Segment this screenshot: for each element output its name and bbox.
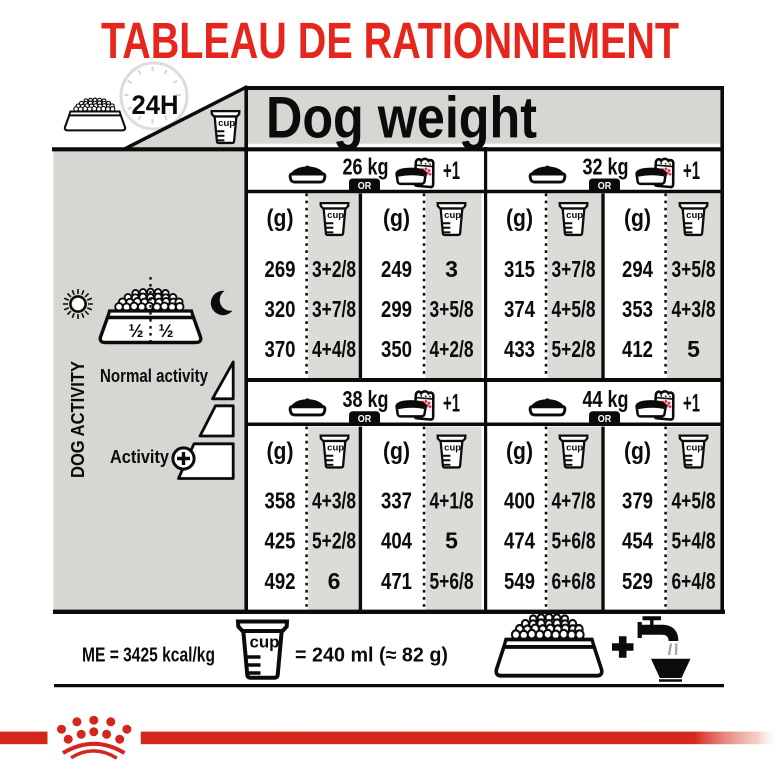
svg-text:350: 350 [381, 336, 412, 362]
svg-text:400: 400 [504, 488, 535, 514]
svg-text:38 kg: 38 kg [343, 386, 389, 412]
svg-text:337: 337 [381, 488, 412, 514]
svg-text:(g): (g) [506, 205, 533, 232]
svg-text:353: 353 [622, 296, 653, 322]
svg-text:4+3/8: 4+3/8 [312, 488, 356, 514]
svg-text:358: 358 [265, 488, 296, 514]
svg-text:249: 249 [381, 256, 412, 282]
svg-text:3+7/8: 3+7/8 [552, 256, 596, 282]
svg-text:(g): (g) [624, 205, 651, 232]
svg-text:294: 294 [622, 256, 653, 282]
svg-text:TABLEAU DE RATIONNEMENT: TABLEAU DE RATIONNEMENT [101, 12, 679, 69]
svg-text:(g): (g) [267, 205, 294, 232]
svg-text:5+2/8: 5+2/8 [552, 336, 596, 362]
svg-text:5: 5 [445, 528, 458, 554]
svg-text:24H: 24H [132, 90, 179, 120]
svg-text:+1: +1 [683, 157, 700, 185]
svg-text:4+1/8: 4+1/8 [430, 488, 474, 514]
svg-text:3+5/8: 3+5/8 [430, 296, 474, 322]
svg-text:44 kg: 44 kg [583, 386, 629, 412]
svg-text:26 kg: 26 kg [343, 154, 389, 180]
svg-text:5+2/8: 5+2/8 [312, 528, 356, 554]
svg-text:DOG ACTIVITY: DOG ACTIVITY [67, 360, 88, 478]
svg-text:Activity: Activity [110, 447, 169, 467]
svg-text:+1: +1 [443, 157, 460, 185]
svg-text:6+6/8: 6+6/8 [552, 568, 596, 594]
svg-text:379: 379 [622, 488, 653, 514]
svg-text:5+6/8: 5+6/8 [552, 528, 596, 554]
svg-text:(g): (g) [267, 438, 294, 465]
svg-text:ME = 3425 kcal/kg: ME = 3425 kcal/kg [82, 645, 215, 667]
svg-text:370: 370 [265, 336, 296, 362]
svg-text:404: 404 [381, 528, 412, 554]
svg-text:492: 492 [265, 568, 296, 594]
svg-text:425: 425 [265, 528, 296, 554]
svg-text:4+5/8: 4+5/8 [672, 488, 716, 514]
svg-text:3: 3 [445, 256, 458, 282]
svg-text:5+6/8: 5+6/8 [430, 568, 474, 594]
svg-text:269: 269 [265, 256, 296, 282]
svg-text:474: 474 [504, 528, 535, 554]
svg-text:4+3/8: 4+3/8 [672, 296, 716, 322]
svg-text:315: 315 [504, 256, 535, 282]
svg-text:= 240 ml (≈ 82 g): = 240 ml (≈ 82 g) [295, 645, 448, 667]
svg-text:5+4/8: 5+4/8 [672, 528, 716, 554]
svg-text:+1: +1 [443, 389, 460, 417]
svg-text:454: 454 [622, 528, 653, 554]
svg-text:4+7/8: 4+7/8 [552, 488, 596, 514]
svg-text:6: 6 [328, 568, 341, 594]
svg-text:549: 549 [504, 568, 535, 594]
svg-text:+1: +1 [683, 389, 700, 417]
svg-text:529: 529 [622, 568, 653, 594]
svg-text:374: 374 [504, 296, 535, 322]
svg-text:320: 320 [265, 296, 296, 322]
svg-text:6+4/8: 6+4/8 [672, 568, 716, 594]
svg-text:(g): (g) [624, 438, 651, 465]
svg-text:4+2/8: 4+2/8 [430, 336, 474, 362]
svg-text:½: ½ [158, 321, 173, 341]
svg-text:Dog weight: Dog weight [266, 86, 537, 151]
svg-text:3+2/8: 3+2/8 [312, 256, 356, 282]
svg-text:½: ½ [128, 321, 143, 341]
svg-text:3+5/8: 3+5/8 [672, 256, 716, 282]
svg-text:5: 5 [687, 336, 700, 362]
svg-text:(g): (g) [383, 205, 410, 232]
svg-text:(g): (g) [506, 438, 533, 465]
svg-text:412: 412 [622, 336, 653, 362]
svg-text:32 kg: 32 kg [583, 154, 629, 180]
svg-text:433: 433 [504, 336, 535, 362]
svg-text:4+5/8: 4+5/8 [552, 296, 596, 322]
svg-text:Normal activity: Normal activity [100, 366, 208, 386]
svg-text:3+7/8: 3+7/8 [312, 296, 356, 322]
svg-text:(g): (g) [383, 438, 410, 465]
svg-text:471: 471 [381, 568, 412, 594]
svg-text:299: 299 [381, 296, 412, 322]
svg-text:4+4/8: 4+4/8 [312, 336, 356, 362]
